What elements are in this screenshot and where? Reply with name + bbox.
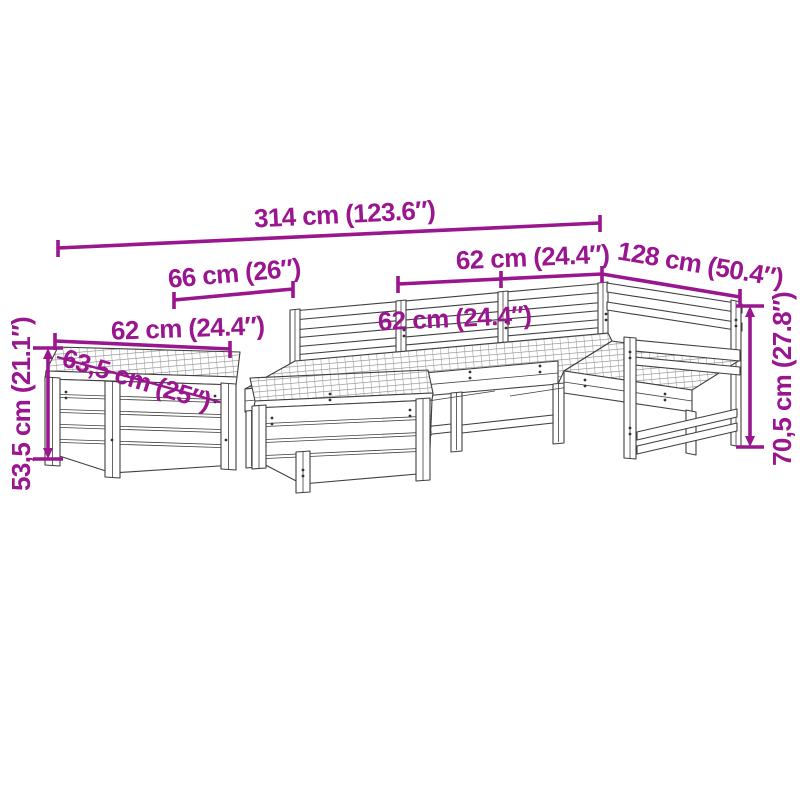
dim-sofa-height-label: 70,5 cm (27.8″) [767, 292, 797, 466]
dim-side-table-height-label: 53,5 cm (21.1″) [6, 317, 36, 491]
product-dimensions-diagram: 314 cm (123.6″) 66 cm (26″) 62 cm (24.4″… [0, 0, 800, 800]
dim-sofa-height: 70,5 cm (27.8″) [736, 292, 797, 466]
diagram-canvas: 314 cm (123.6″) 66 cm (26″) 62 cm (24.4″… [0, 0, 800, 800]
dim-back-left-section: 66 cm (26″) [167, 252, 302, 309]
dim-total-width-label: 314 cm (123.6″) [253, 195, 435, 234]
dim-right-section-depth-label: 128 cm (50.4″) [615, 236, 785, 293]
dim-side-table-width-label: 62 cm (24.4″) [110, 310, 264, 345]
ottoman [250, 370, 433, 493]
dim-back-right-section-label: 62 cm (24.4″) [455, 239, 610, 276]
dim-back-left-section-label: 66 cm (26″) [167, 252, 302, 293]
